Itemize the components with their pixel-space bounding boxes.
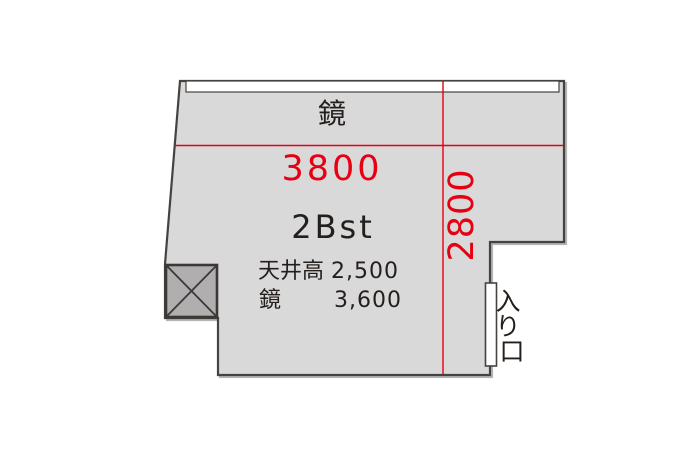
mirror-wall-label: 鏡 bbox=[318, 97, 346, 130]
width-dimension-label: 3800 bbox=[281, 149, 382, 189]
entrance-label-char-3: 口 bbox=[499, 337, 524, 366]
mirror-width-label: 鏡 bbox=[259, 288, 281, 313]
room-name-label: 2Bst bbox=[291, 208, 375, 246]
floor-plan: 鏡 3800 2800 2Bst 天井高 2,500 鏡 3,600 入 り 口 bbox=[0, 0, 700, 465]
entrance-label: 入 り 口 bbox=[496, 287, 529, 366]
mirror-strip bbox=[186, 81, 559, 92]
ceiling-height-label: 天井高 bbox=[258, 259, 324, 284]
ceiling-height-value: 2,500 bbox=[331, 259, 399, 284]
column-post bbox=[166, 265, 217, 317]
floor-plan-canvas: 鏡 3800 2800 2Bst 天井高 2,500 鏡 3,600 入 り 口 bbox=[0, 0, 700, 465]
depth-dimension-label: 2800 bbox=[442, 168, 482, 261]
mirror-width-value: 3,600 bbox=[334, 288, 402, 313]
